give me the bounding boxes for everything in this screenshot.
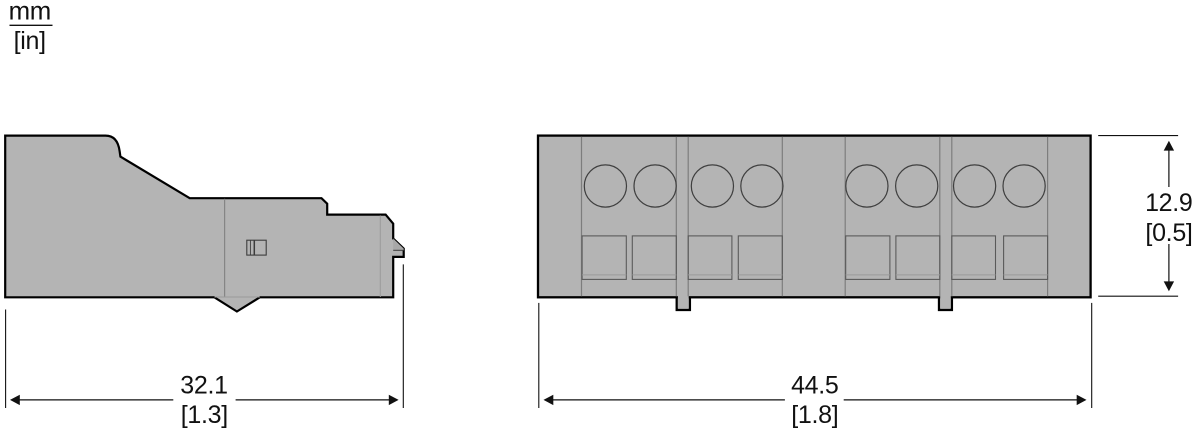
- svg-text:[1.3]: [1.3]: [181, 401, 228, 429]
- svg-text:mm: mm: [9, 0, 51, 25]
- svg-text:12.9: 12.9: [1145, 189, 1192, 217]
- svg-text:[1.8]: [1.8]: [791, 401, 838, 429]
- svg-text:[in]: [in]: [14, 27, 46, 55]
- svg-text:32.1: 32.1: [180, 371, 227, 399]
- svg-text:[0.5]: [0.5]: [1145, 219, 1192, 247]
- svg-text:44.5: 44.5: [791, 371, 838, 399]
